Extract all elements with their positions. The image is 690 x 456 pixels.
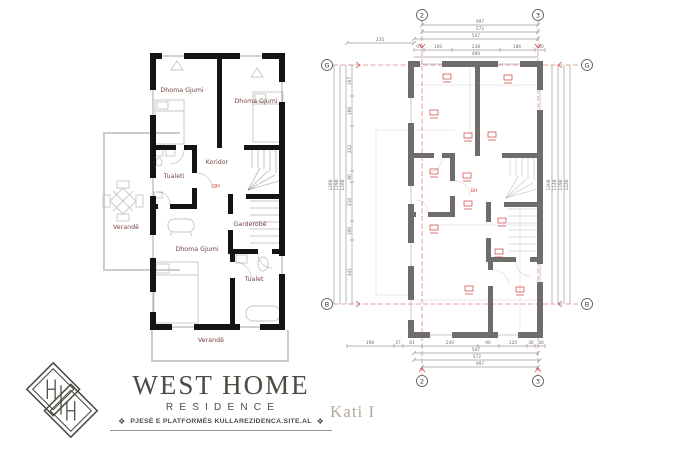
door-window-tag <box>465 286 473 294</box>
dim-seg: 341 <box>347 268 353 276</box>
dim-right-1200: 1200 <box>546 179 552 190</box>
dimension-labels: 997 572 547 235 97 100 238 186 40 490 19… <box>328 19 570 367</box>
dim-seg: 120 <box>509 340 517 346</box>
grid-bubble-b-left: B <box>325 300 329 308</box>
floor-caption: Kati I <box>330 402 375 422</box>
door-height-marker: DH <box>212 184 220 190</box>
room-label-bedroom-tl: Dhoma Gjumi <box>160 87 203 94</box>
dim-seg: 238 <box>472 44 480 50</box>
dim-seg: 100 <box>434 44 442 50</box>
door-window-tag <box>443 74 451 82</box>
diamond-ornament-icon: ❖ <box>317 418 324 426</box>
page: Dhoma Gjumi Dhoma Gjumi Koridor Tualeti … <box>0 0 690 456</box>
dim-seg: 37 <box>395 340 401 346</box>
dim-seg: 242 <box>347 145 353 153</box>
dim-right-1190: 1190 <box>558 179 564 190</box>
grid-bubble-g-left: G <box>324 61 329 69</box>
dim-seg: 210 <box>347 198 353 206</box>
dim-seg: 167 <box>347 77 353 85</box>
door-window-tag <box>430 110 438 118</box>
dim-left-1160: 1160 <box>340 179 346 190</box>
grid-bubble-b-right: B <box>585 300 589 308</box>
dim-seg: 198 <box>366 340 374 346</box>
logo-diamond-outer <box>27 363 97 437</box>
dim-bottom-572: 572 <box>473 354 481 360</box>
brand-title: WEST HOME <box>110 370 332 400</box>
door-window-tag <box>464 201 472 209</box>
door-window-tag <box>430 169 438 177</box>
left-floor-plan: Dhoma Gjumi Dhoma Gjumi Koridor Tualeti … <box>103 53 288 361</box>
construction-lines <box>376 66 537 330</box>
dim-seg: 240 <box>446 340 454 346</box>
dim-top-490: 490 <box>472 51 480 57</box>
door-window-tag <box>488 132 496 140</box>
logo-diamond-inner <box>33 369 92 432</box>
dim-seg: 100 <box>347 227 353 235</box>
dim-seg: 60 <box>347 174 353 180</box>
door-window-tag <box>495 249 503 257</box>
dim-seg: 160 <box>347 107 353 115</box>
dim-bottom-997: 997 <box>476 361 484 367</box>
brand-divider <box>110 430 332 431</box>
door-height-marker: DH <box>471 188 478 194</box>
grid-bubble-2-top: 2 <box>420 11 424 19</box>
brand-tagline: PJESË E PLATFORMËS KULLAREZIDENCA.SITE.A… <box>130 418 311 425</box>
grid-bubble-g-right: G <box>584 61 589 69</box>
room-label-toilet-lower: Tualet <box>244 276 264 283</box>
door-window-tag <box>504 75 512 83</box>
logo-mark <box>18 356 106 444</box>
dim-right-1220: 1220 <box>564 179 570 190</box>
door-window-tag <box>430 225 438 233</box>
door-window-tag <box>463 173 471 181</box>
dim-top-572: 572 <box>476 26 484 32</box>
brand-subtitle: RESIDENCE <box>114 402 332 413</box>
room-label-veranda-bottom: Verandë <box>198 337 224 344</box>
dim-seg: 186 <box>513 44 521 50</box>
right-floor-plan: 997 572 547 235 97 100 238 186 40 490 19… <box>322 10 593 387</box>
diamond-ornament-icon: ❖ <box>118 418 125 426</box>
grid-bubble-3-bottom: 3 <box>536 377 540 385</box>
dim-left-1280: 1280 <box>328 179 334 190</box>
left-plan-structure <box>150 53 285 330</box>
right-plan-structure <box>408 61 543 338</box>
dim-seg: 90 <box>485 340 491 346</box>
grid-bubble-3-top: 3 <box>536 11 540 19</box>
axis-arrows <box>356 44 562 372</box>
dim-left-1190: 1190 <box>334 179 340 190</box>
room-label-wardrobe: Garderobë <box>233 221 266 228</box>
axis-lines <box>333 21 581 375</box>
room-label-veranda-left: Verandë <box>113 224 139 231</box>
dim-seg: 36 <box>528 340 534 346</box>
grid-bubble-2-bottom: 2 <box>420 377 424 385</box>
branding-block: WEST HOME RESIDENCE ❖ PJESË E PLATFORMËS… <box>18 356 332 444</box>
dim-top-997: 997 <box>476 19 484 25</box>
dim-right-1140: 1140 <box>552 179 558 190</box>
dim-seg: 40 <box>538 340 544 346</box>
room-label-corridor: Koridor <box>206 159 229 166</box>
dim-top-547: 547 <box>472 33 480 39</box>
door-window-tag <box>464 133 472 141</box>
dim-bottom-547: 547 <box>472 347 480 353</box>
room-label-bedroom-main: Dhoma Gjumi <box>175 246 218 253</box>
room-label-bedroom-tr: Dhoma Gjumi <box>234 98 277 105</box>
dim-offset-235: 235 <box>376 37 384 43</box>
room-label-toilet-upper: Tualeti <box>163 173 185 180</box>
dim-seg: 81 <box>409 340 415 346</box>
